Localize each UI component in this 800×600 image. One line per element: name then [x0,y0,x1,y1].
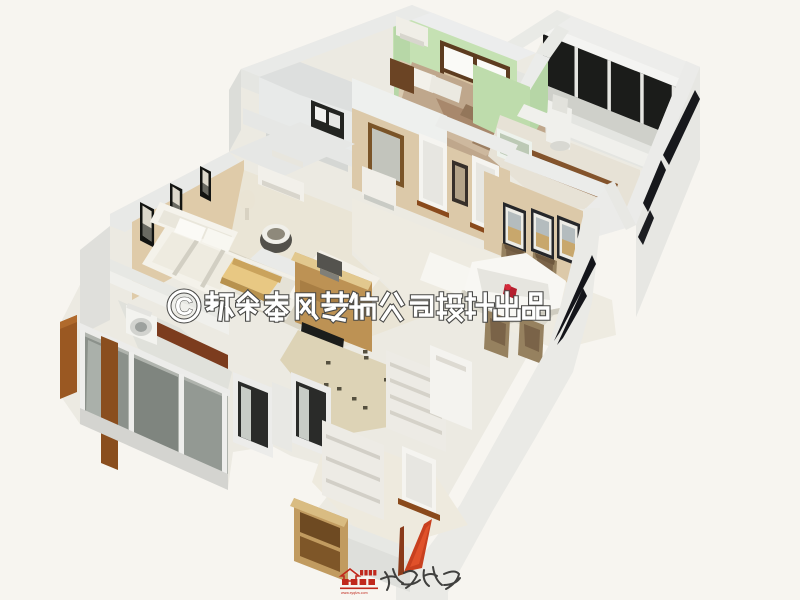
svg-text:www.xyqfzs.com: www.xyqfzs.com [341,591,368,595]
svg-text:C: C [175,293,193,321]
